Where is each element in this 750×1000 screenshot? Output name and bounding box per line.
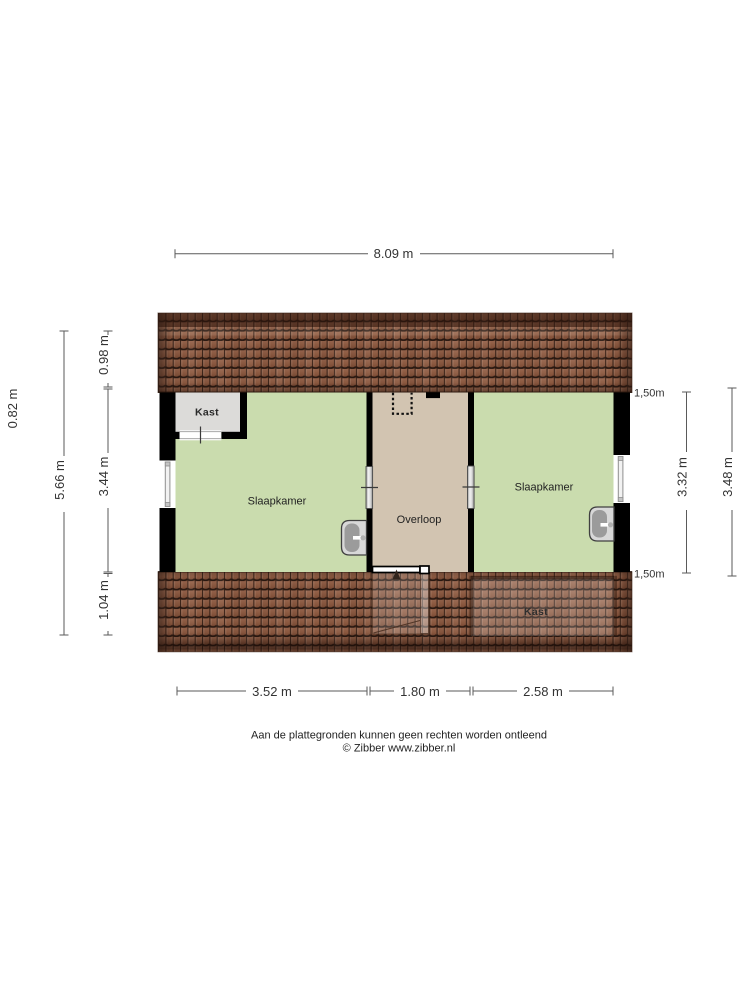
svg-text:0.82 m: 0.82 m bbox=[5, 389, 20, 429]
svg-text:8.09 m: 8.09 m bbox=[374, 246, 414, 261]
svg-text:Slaapkamer: Slaapkamer bbox=[248, 496, 307, 508]
svg-text:Overloop: Overloop bbox=[397, 514, 442, 526]
svg-text:1.04 m: 1.04 m bbox=[96, 580, 111, 620]
svg-text:Slaapkamer: Slaapkamer bbox=[515, 482, 574, 494]
svg-text:3.52 m: 3.52 m bbox=[252, 684, 292, 699]
svg-text:1,50m: 1,50m bbox=[634, 388, 665, 400]
svg-text:3.32 m: 3.32 m bbox=[675, 457, 690, 497]
svg-text:Aan de plattegronden kunnen ge: Aan de plattegronden kunnen geen rechten… bbox=[251, 730, 547, 742]
svg-text:1.80 m: 1.80 m bbox=[400, 684, 440, 699]
svg-text:2.58 m: 2.58 m bbox=[523, 684, 563, 699]
svg-text:3.48 m: 3.48 m bbox=[720, 457, 735, 497]
svg-text:1,50m: 1,50m bbox=[634, 569, 665, 581]
svg-text:Kast: Kast bbox=[524, 606, 548, 618]
svg-text:3.44 m: 3.44 m bbox=[96, 457, 111, 497]
svg-text:© Zibber www.zibber.nl: © Zibber www.zibber.nl bbox=[343, 743, 456, 755]
svg-text:0.98 m: 0.98 m bbox=[96, 335, 111, 375]
svg-text:Kast: Kast bbox=[195, 407, 219, 419]
svg-text:5.66 m: 5.66 m bbox=[52, 460, 67, 500]
